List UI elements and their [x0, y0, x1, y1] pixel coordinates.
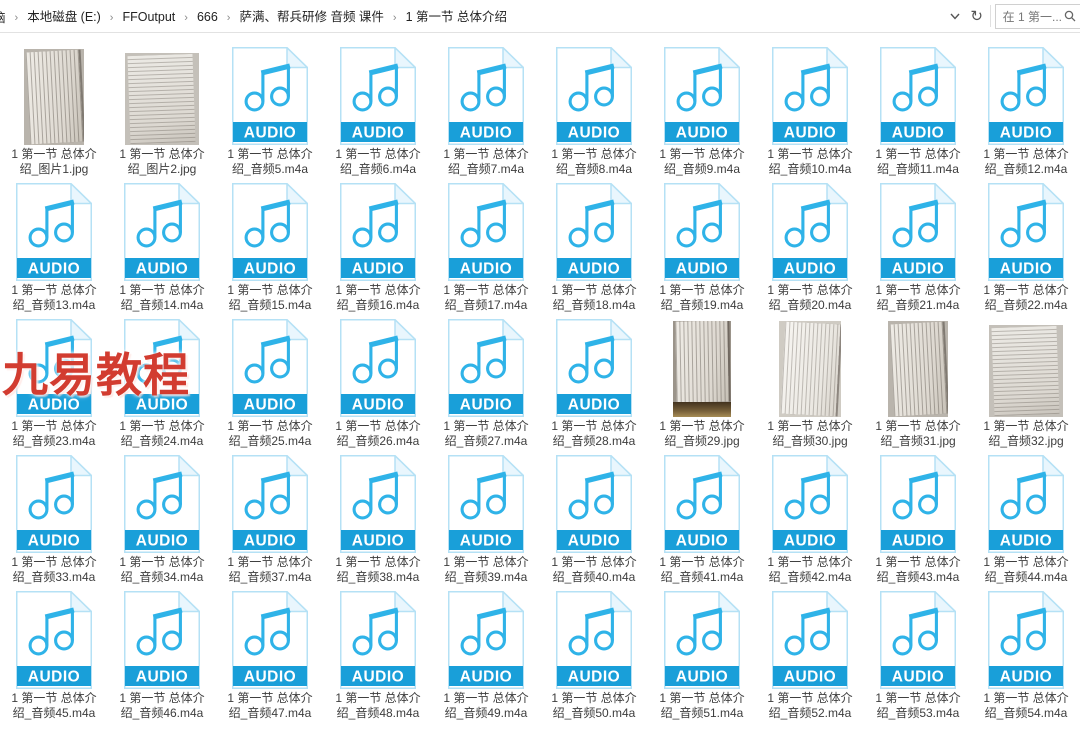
- svg-text:AUDIO: AUDIO: [892, 533, 944, 550]
- search-input[interactable]: 在 1 第一...: [1003, 8, 1062, 25]
- audio-file-item[interactable]: AUDIO 1 第一节 总体介绍_音频16.m4a: [324, 182, 432, 318]
- breadcrumb: ›本地磁盘 (E:)›FFOutput›666›萨满、帮兵研修 音频 课件›1 …: [10, 6, 511, 26]
- file-name-label: 1 第一节 总体介绍_音频29.jpg: [659, 419, 744, 449]
- audio-file-item[interactable]: AUDIO 1 第一节 总体介绍_音频21.m4a: [864, 182, 972, 318]
- file-icon-box[interactable]: AUDIO: [0, 454, 108, 553]
- file-icon-box[interactable]: AUDIO: [540, 182, 648, 281]
- svg-text:AUDIO: AUDIO: [352, 533, 404, 550]
- file-name-label: 1 第一节 总体介绍_音频16.m4a: [335, 283, 420, 313]
- svg-text:AUDIO: AUDIO: [784, 261, 836, 278]
- file-icon-box[interactable]: AUDIO: [540, 590, 648, 689]
- file-icon-box[interactable]: AUDIO: [540, 318, 648, 417]
- audio-file-item[interactable]: AUDIO 1 第一节 总体介绍_音频40.m4a: [540, 454, 648, 590]
- file-icon-box[interactable]: AUDIO: [324, 182, 432, 281]
- audio-file-icon: AUDIO: [340, 319, 416, 417]
- audio-file-item[interactable]: AUDIO 1 第一节 总体介绍_音频5.m4a: [216, 46, 324, 182]
- audio-file-item[interactable]: AUDIO 1 第一节 总体介绍_音频25.m4a: [216, 318, 324, 454]
- audio-file-item[interactable]: AUDIO 1 第一节 总体介绍_音频33.m4a: [0, 454, 108, 590]
- file-name-label: 1 第一节 总体介绍_音频18.m4a: [551, 283, 636, 313]
- file-name-label: 1 第一节 总体介绍_音频30.jpg: [767, 419, 852, 449]
- file-grid: 1 第一节 总体介绍_图片1.jpg 1 第一节 总体介绍_图片2.jpg AU…: [0, 33, 1080, 726]
- audio-file-item[interactable]: AUDIO 1 第一节 总体介绍_音频7.m4a: [432, 46, 540, 182]
- search-icon[interactable]: [1064, 10, 1076, 22]
- audio-file-icon: AUDIO: [340, 455, 416, 553]
- audio-file-item[interactable]: AUDIO 1 第一节 总体介绍_音频23.m4a: [0, 318, 108, 454]
- file-name-label: 1 第一节 总体介绍_音频52.m4a: [767, 691, 852, 721]
- svg-text:AUDIO: AUDIO: [28, 261, 80, 278]
- file-icon-box[interactable]: AUDIO: [432, 454, 540, 553]
- breadcrumb-item[interactable]: 1 第一节 总体介绍: [402, 8, 511, 26]
- svg-text:AUDIO: AUDIO: [352, 261, 404, 278]
- audio-file-icon: AUDIO: [988, 47, 1064, 145]
- audio-file-item[interactable]: AUDIO 1 第一节 总体介绍_音频12.m4a: [972, 46, 1080, 182]
- file-icon-box[interactable]: AUDIO: [972, 182, 1080, 281]
- file-name-label: 1 第一节 总体介绍_音频10.m4a: [767, 147, 852, 177]
- file-icon-box[interactable]: AUDIO: [864, 46, 972, 145]
- file-name-label: 1 第一节 总体介绍_音频9.m4a: [659, 147, 744, 177]
- svg-text:AUDIO: AUDIO: [244, 261, 296, 278]
- audio-file-item[interactable]: AUDIO 1 第一节 总体介绍_音频20.m4a: [756, 182, 864, 318]
- svg-text:AUDIO: AUDIO: [136, 533, 188, 550]
- file-icon-box[interactable]: AUDIO: [756, 182, 864, 281]
- file-icon-box[interactable]: [0, 46, 108, 145]
- audio-file-icon: AUDIO: [16, 319, 92, 417]
- file-name-label: 1 第一节 总体介绍_音频54.m4a: [983, 691, 1068, 721]
- breadcrumb-separator-icon: ›: [105, 12, 119, 24]
- audio-file-icon: AUDIO: [880, 455, 956, 553]
- audio-file-icon: AUDIO: [772, 455, 848, 553]
- file-icon-box[interactable]: AUDIO: [756, 46, 864, 145]
- audio-file-icon: AUDIO: [556, 319, 632, 417]
- svg-text:AUDIO: AUDIO: [28, 669, 80, 686]
- audio-file-item[interactable]: AUDIO 1 第一节 总体介绍_音频24.m4a: [108, 318, 216, 454]
- audio-file-item[interactable]: AUDIO 1 第一节 总体介绍_音频27.m4a: [432, 318, 540, 454]
- audio-file-icon: AUDIO: [772, 47, 848, 145]
- file-name-label: 1 第一节 总体介绍_音频47.m4a: [227, 691, 312, 721]
- refresh-button[interactable]: ↻: [966, 4, 988, 28]
- svg-text:AUDIO: AUDIO: [244, 397, 296, 414]
- address-dropdown-button[interactable]: [944, 4, 966, 28]
- audio-file-icon: AUDIO: [124, 319, 200, 417]
- file-icon-box[interactable]: AUDIO: [216, 454, 324, 553]
- topbar-divider: [990, 5, 991, 27]
- file-name-label: 1 第一节 总体介绍_音频41.m4a: [659, 555, 744, 585]
- file-icon-box[interactable]: [648, 318, 756, 417]
- file-icon-box[interactable]: AUDIO: [0, 590, 108, 689]
- audio-file-icon: AUDIO: [988, 455, 1064, 553]
- audio-file-icon: AUDIO: [772, 591, 848, 689]
- address-bar-controls: ↻: [944, 0, 995, 33]
- chevron-down-icon: [950, 13, 960, 20]
- image-file-item[interactable]: 1 第一节 总体介绍_音频29.jpg: [648, 318, 756, 454]
- audio-file-icon: AUDIO: [448, 319, 524, 417]
- audio-file-item[interactable]: AUDIO 1 第一节 总体介绍_音频17.m4a: [432, 182, 540, 318]
- audio-file-item[interactable]: AUDIO 1 第一节 总体介绍_音频15.m4a: [216, 182, 324, 318]
- image-file-item[interactable]: 1 第一节 总体介绍_音频30.jpg: [756, 318, 864, 454]
- file-name-label: 1 第一节 总体介绍_音频28.m4a: [551, 419, 636, 449]
- audio-file-icon: AUDIO: [340, 591, 416, 689]
- file-name-label: 1 第一节 总体介绍_音频22.m4a: [983, 283, 1068, 313]
- file-icon-box[interactable]: AUDIO: [432, 590, 540, 689]
- file-name-label: 1 第一节 总体介绍_音频34.m4a: [119, 555, 204, 585]
- audio-file-item[interactable]: AUDIO 1 第一节 总体介绍_音频26.m4a: [324, 318, 432, 454]
- audio-file-item[interactable]: AUDIO 1 第一节 总体介绍_音频19.m4a: [648, 182, 756, 318]
- image-file-item[interactable]: 1 第一节 总体介绍_图片2.jpg: [108, 46, 216, 182]
- svg-text:AUDIO: AUDIO: [892, 125, 944, 142]
- svg-text:AUDIO: AUDIO: [568, 125, 620, 142]
- audio-file-icon: AUDIO: [664, 591, 740, 689]
- audio-file-icon: AUDIO: [880, 47, 956, 145]
- file-icon-box[interactable]: AUDIO: [432, 46, 540, 145]
- file-name-label: 1 第一节 总体介绍_音频51.m4a: [659, 691, 744, 721]
- file-icon-box[interactable]: AUDIO: [972, 454, 1080, 553]
- breadcrumb-separator-icon: ›: [222, 12, 236, 24]
- svg-text:AUDIO: AUDIO: [244, 533, 296, 550]
- audio-file-icon: AUDIO: [448, 183, 524, 281]
- audio-file-icon: AUDIO: [16, 183, 92, 281]
- photo-thumbnail: [24, 49, 84, 145]
- file-icon-box[interactable]: [972, 318, 1080, 417]
- file-icon-box[interactable]: AUDIO: [324, 46, 432, 145]
- audio-file-icon: AUDIO: [232, 319, 308, 417]
- file-icon-box[interactable]: AUDIO: [648, 590, 756, 689]
- svg-text:AUDIO: AUDIO: [28, 397, 80, 414]
- file-name-label: 1 第一节 总体介绍_音频21.m4a: [875, 283, 960, 313]
- audio-file-item[interactable]: AUDIO 1 第一节 总体介绍_音频39.m4a: [432, 454, 540, 590]
- file-name-label: 1 第一节 总体介绍_音频44.m4a: [983, 555, 1068, 585]
- audio-file-icon: AUDIO: [880, 183, 956, 281]
- address-bar[interactable]: 脑 ›本地磁盘 (E:)›FFOutput›666›萨满、帮兵研修 音频 课件›…: [0, 0, 944, 33]
- audio-file-icon: AUDIO: [16, 455, 92, 553]
- file-icon-box[interactable]: AUDIO: [540, 454, 648, 553]
- svg-text:AUDIO: AUDIO: [568, 533, 620, 550]
- file-icon-box[interactable]: AUDIO: [864, 454, 972, 553]
- image-file-item[interactable]: 1 第一节 总体介绍_图片1.jpg: [0, 46, 108, 182]
- explorer-topbar: 脑 ›本地磁盘 (E:)›FFOutput›666›萨满、帮兵研修 音频 课件›…: [0, 0, 1080, 33]
- audio-file-icon: AUDIO: [232, 591, 308, 689]
- file-name-label: 1 第一节 总体介绍_音频40.m4a: [551, 555, 636, 585]
- audio-file-item[interactable]: AUDIO 1 第一节 总体介绍_音频14.m4a: [108, 182, 216, 318]
- file-name-label: 1 第一节 总体介绍_音频25.m4a: [227, 419, 312, 449]
- file-name-label: 1 第一节 总体介绍_音频8.m4a: [551, 147, 636, 177]
- audio-file-icon: AUDIO: [556, 183, 632, 281]
- svg-text:AUDIO: AUDIO: [460, 261, 512, 278]
- svg-text:AUDIO: AUDIO: [460, 533, 512, 550]
- file-icon-box[interactable]: AUDIO: [108, 318, 216, 417]
- audio-file-item[interactable]: AUDIO 1 第一节 总体介绍_音频38.m4a: [324, 454, 432, 590]
- audio-file-item[interactable]: AUDIO 1 第一节 总体介绍_音频13.m4a: [0, 182, 108, 318]
- audio-file-item[interactable]: AUDIO 1 第一节 总体介绍_音频54.m4a: [972, 590, 1080, 726]
- audio-file-item[interactable]: AUDIO 1 第一节 总体介绍_音频47.m4a: [216, 590, 324, 726]
- svg-text:AUDIO: AUDIO: [1000, 669, 1052, 686]
- svg-text:AUDIO: AUDIO: [460, 125, 512, 142]
- svg-text:AUDIO: AUDIO: [568, 261, 620, 278]
- file-name-label: 1 第一节 总体介绍_音频42.m4a: [767, 555, 852, 585]
- svg-text:AUDIO: AUDIO: [136, 669, 188, 686]
- audio-file-icon: AUDIO: [448, 47, 524, 145]
- audio-file-icon: AUDIO: [664, 183, 740, 281]
- breadcrumb-separator-icon: ›: [388, 12, 402, 24]
- audio-file-icon: AUDIO: [340, 183, 416, 281]
- audio-file-item[interactable]: AUDIO 1 第一节 总体介绍_音频22.m4a: [972, 182, 1080, 318]
- image-file-item[interactable]: 1 第一节 总体介绍_音频31.jpg: [864, 318, 972, 454]
- audio-file-icon: AUDIO: [232, 47, 308, 145]
- svg-text:AUDIO: AUDIO: [784, 669, 836, 686]
- svg-text:AUDIO: AUDIO: [568, 397, 620, 414]
- svg-text:AUDIO: AUDIO: [244, 125, 296, 142]
- audio-file-item[interactable]: AUDIO 1 第一节 总体介绍_音频10.m4a: [756, 46, 864, 182]
- audio-file-item[interactable]: AUDIO 1 第一节 总体介绍_音频53.m4a: [864, 590, 972, 726]
- svg-text:AUDIO: AUDIO: [892, 669, 944, 686]
- file-icon-box[interactable]: AUDIO: [324, 318, 432, 417]
- file-name-label: 1 第一节 总体介绍_图片2.jpg: [119, 147, 204, 177]
- file-icon-box[interactable]: [108, 46, 216, 145]
- file-icon-box[interactable]: AUDIO: [108, 182, 216, 281]
- file-name-label: 1 第一节 总体介绍_音频50.m4a: [551, 691, 636, 721]
- audio-file-item[interactable]: AUDIO 1 第一节 总体介绍_音频44.m4a: [972, 454, 1080, 590]
- audio-file-icon: AUDIO: [556, 591, 632, 689]
- photo-thumbnail: [888, 321, 948, 417]
- svg-text:AUDIO: AUDIO: [1000, 261, 1052, 278]
- svg-text:AUDIO: AUDIO: [352, 125, 404, 142]
- audio-file-item[interactable]: AUDIO 1 第一节 总体介绍_音频28.m4a: [540, 318, 648, 454]
- svg-text:AUDIO: AUDIO: [136, 397, 188, 414]
- audio-file-icon: AUDIO: [664, 455, 740, 553]
- breadcrumb-item[interactable]: 萨满、帮兵研修 音频 课件: [235, 8, 387, 26]
- file-icon-box[interactable]: AUDIO: [648, 46, 756, 145]
- svg-text:AUDIO: AUDIO: [676, 125, 728, 142]
- file-icon-box[interactable]: [756, 318, 864, 417]
- svg-text:AUDIO: AUDIO: [460, 397, 512, 414]
- audio-file-icon: AUDIO: [448, 455, 524, 553]
- svg-text:AUDIO: AUDIO: [676, 533, 728, 550]
- file-name-label: 1 第一节 总体介绍_音频11.m4a: [875, 147, 960, 177]
- svg-text:AUDIO: AUDIO: [28, 533, 80, 550]
- file-name-label: 1 第一节 总体介绍_音频48.m4a: [335, 691, 420, 721]
- breadcrumb-separator-icon: ›: [179, 12, 193, 24]
- file-icon-box[interactable]: AUDIO: [324, 454, 432, 553]
- file-name-label: 1 第一节 总体介绍_音频7.m4a: [443, 147, 528, 177]
- file-icon-box[interactable]: AUDIO: [756, 454, 864, 553]
- audio-file-item[interactable]: AUDIO 1 第一节 总体介绍_音频34.m4a: [108, 454, 216, 590]
- audio-file-item[interactable]: AUDIO 1 第一节 总体介绍_音频52.m4a: [756, 590, 864, 726]
- file-icon-box[interactable]: AUDIO: [864, 182, 972, 281]
- file-icon-box[interactable]: AUDIO: [324, 590, 432, 689]
- svg-text:AUDIO: AUDIO: [568, 669, 620, 686]
- search-box[interactable]: 在 1 第一...: [995, 4, 1080, 29]
- audio-file-icon: AUDIO: [988, 183, 1064, 281]
- file-name-label: 1 第一节 总体介绍_音频38.m4a: [335, 555, 420, 585]
- file-name-label: 1 第一节 总体介绍_音频13.m4a: [11, 283, 96, 313]
- file-icon-box[interactable]: AUDIO: [108, 454, 216, 553]
- audio-file-item[interactable]: AUDIO 1 第一节 总体介绍_音频48.m4a: [324, 590, 432, 726]
- audio-file-item[interactable]: AUDIO 1 第一节 总体介绍_音频37.m4a: [216, 454, 324, 590]
- svg-text:AUDIO: AUDIO: [892, 261, 944, 278]
- file-name-label: 1 第一节 总体介绍_音频5.m4a: [227, 147, 312, 177]
- svg-text:AUDIO: AUDIO: [676, 261, 728, 278]
- svg-text:AUDIO: AUDIO: [1000, 125, 1052, 142]
- image-file-item[interactable]: 1 第一节 总体介绍_音频32.jpg: [972, 318, 1080, 454]
- photo-thumbnail: [779, 321, 841, 417]
- file-name-label: 1 第一节 总体介绍_音频6.m4a: [335, 147, 420, 177]
- audio-file-item[interactable]: AUDIO 1 第一节 总体介绍_音频51.m4a: [648, 590, 756, 726]
- audio-file-icon: AUDIO: [556, 455, 632, 553]
- file-name-label: 1 第一节 总体介绍_音频20.m4a: [767, 283, 852, 313]
- audio-file-icon: AUDIO: [340, 47, 416, 145]
- file-icon-box[interactable]: AUDIO: [864, 590, 972, 689]
- audio-file-icon: AUDIO: [124, 591, 200, 689]
- file-icon-box[interactable]: AUDIO: [216, 46, 324, 145]
- audio-file-icon: AUDIO: [880, 591, 956, 689]
- file-icon-box[interactable]: AUDIO: [972, 46, 1080, 145]
- audio-file-item[interactable]: AUDIO 1 第一节 总体介绍_音频6.m4a: [324, 46, 432, 182]
- audio-file-item[interactable]: AUDIO 1 第一节 总体介绍_音频8.m4a: [540, 46, 648, 182]
- file-icon-box[interactable]: AUDIO: [756, 590, 864, 689]
- audio-file-item[interactable]: AUDIO 1 第一节 总体介绍_音频49.m4a: [432, 590, 540, 726]
- file-icon-box[interactable]: AUDIO: [108, 590, 216, 689]
- svg-text:AUDIO: AUDIO: [352, 669, 404, 686]
- audio-file-item[interactable]: AUDIO 1 第一节 总体介绍_音频41.m4a: [648, 454, 756, 590]
- file-name-label: 1 第一节 总体介绍_图片1.jpg: [11, 147, 96, 177]
- file-icon-box[interactable]: AUDIO: [432, 318, 540, 417]
- file-icon-box[interactable]: AUDIO: [648, 182, 756, 281]
- audio-file-icon: AUDIO: [556, 47, 632, 145]
- file-name-label: 1 第一节 总体介绍_音频33.m4a: [11, 555, 96, 585]
- file-icon-box[interactable]: AUDIO: [432, 182, 540, 281]
- file-icon-box[interactable]: AUDIO: [540, 46, 648, 145]
- file-name-label: 1 第一节 总体介绍_音频14.m4a: [119, 283, 204, 313]
- file-icon-box[interactable]: AUDIO: [972, 590, 1080, 689]
- svg-text:AUDIO: AUDIO: [784, 533, 836, 550]
- file-name-label: 1 第一节 总体介绍_音频26.m4a: [335, 419, 420, 449]
- file-icon-box[interactable]: [864, 318, 972, 417]
- audio-file-icon: AUDIO: [988, 591, 1064, 689]
- audio-file-icon: AUDIO: [232, 455, 308, 553]
- audio-file-item[interactable]: AUDIO 1 第一节 总体介绍_音频43.m4a: [864, 454, 972, 590]
- file-name-label: 1 第一节 总体介绍_音频27.m4a: [443, 419, 528, 449]
- file-icon-box[interactable]: AUDIO: [0, 318, 108, 417]
- breadcrumb-separator-icon: ›: [10, 12, 24, 24]
- svg-text:AUDIO: AUDIO: [460, 669, 512, 686]
- audio-file-item[interactable]: AUDIO 1 第一节 总体介绍_音频11.m4a: [864, 46, 972, 182]
- file-name-label: 1 第一节 总体介绍_音频23.m4a: [11, 419, 96, 449]
- photo-thumbnail: [989, 325, 1063, 417]
- file-name-label: 1 第一节 总体介绍_音频31.jpg: [875, 419, 960, 449]
- file-name-label: 1 第一节 总体介绍_音频17.m4a: [443, 283, 528, 313]
- audio-file-icon: AUDIO: [232, 183, 308, 281]
- file-name-label: 1 第一节 总体介绍_音频39.m4a: [443, 555, 528, 585]
- file-icon-box[interactable]: AUDIO: [0, 182, 108, 281]
- audio-file-icon: AUDIO: [772, 183, 848, 281]
- breadcrumb-item[interactable]: 666: [193, 8, 222, 26]
- file-name-label: 1 第一节 总体介绍_音频53.m4a: [875, 691, 960, 721]
- file-name-label: 1 第一节 总体介绍_音频32.jpg: [983, 419, 1068, 449]
- audio-file-icon: AUDIO: [124, 455, 200, 553]
- photo-thumbnail: [673, 321, 731, 417]
- file-icon-box[interactable]: AUDIO: [648, 454, 756, 553]
- svg-text:AUDIO: AUDIO: [136, 261, 188, 278]
- audio-file-item[interactable]: AUDIO 1 第一节 总体介绍_音频46.m4a: [108, 590, 216, 726]
- file-icon-box[interactable]: AUDIO: [216, 318, 324, 417]
- audio-file-icon: AUDIO: [16, 591, 92, 689]
- file-icon-box[interactable]: AUDIO: [216, 590, 324, 689]
- file-name-label: 1 第一节 总体介绍_音频24.m4a: [119, 419, 204, 449]
- svg-text:AUDIO: AUDIO: [352, 397, 404, 414]
- file-name-label: 1 第一节 总体介绍_音频15.m4a: [227, 283, 312, 313]
- svg-text:AUDIO: AUDIO: [676, 669, 728, 686]
- audio-file-item[interactable]: AUDIO 1 第一节 总体介绍_音频18.m4a: [540, 182, 648, 318]
- file-name-label: 1 第一节 总体介绍_音频19.m4a: [659, 283, 744, 313]
- audio-file-icon: AUDIO: [664, 47, 740, 145]
- svg-text:AUDIO: AUDIO: [244, 669, 296, 686]
- audio-file-item[interactable]: AUDIO 1 第一节 总体介绍_音频50.m4a: [540, 590, 648, 726]
- breadcrumb-overflow-item[interactable]: 脑: [0, 5, 10, 28]
- breadcrumb-item[interactable]: FFOutput: [118, 8, 179, 26]
- file-name-label: 1 第一节 总体介绍_音频46.m4a: [119, 691, 204, 721]
- svg-text:AUDIO: AUDIO: [1000, 533, 1052, 550]
- file-name-label: 1 第一节 总体介绍_音频43.m4a: [875, 555, 960, 585]
- file-name-label: 1 第一节 总体介绍_音频45.m4a: [11, 691, 96, 721]
- breadcrumb-item[interactable]: 本地磁盘 (E:): [23, 8, 105, 26]
- file-icon-box[interactable]: AUDIO: [216, 182, 324, 281]
- file-name-label: 1 第一节 总体介绍_音频12.m4a: [983, 147, 1068, 177]
- svg-text:AUDIO: AUDIO: [784, 125, 836, 142]
- audio-file-icon: AUDIO: [124, 183, 200, 281]
- file-name-label: 1 第一节 总体介绍_音频37.m4a: [227, 555, 312, 585]
- audio-file-item[interactable]: AUDIO 1 第一节 总体介绍_音频42.m4a: [756, 454, 864, 590]
- file-name-label: 1 第一节 总体介绍_音频49.m4a: [443, 691, 528, 721]
- audio-file-icon: AUDIO: [448, 591, 524, 689]
- audio-file-item[interactable]: AUDIO 1 第一节 总体介绍_音频45.m4a: [0, 590, 108, 726]
- audio-file-item[interactable]: AUDIO 1 第一节 总体介绍_音频9.m4a: [648, 46, 756, 182]
- photo-thumbnail: [125, 53, 199, 145]
